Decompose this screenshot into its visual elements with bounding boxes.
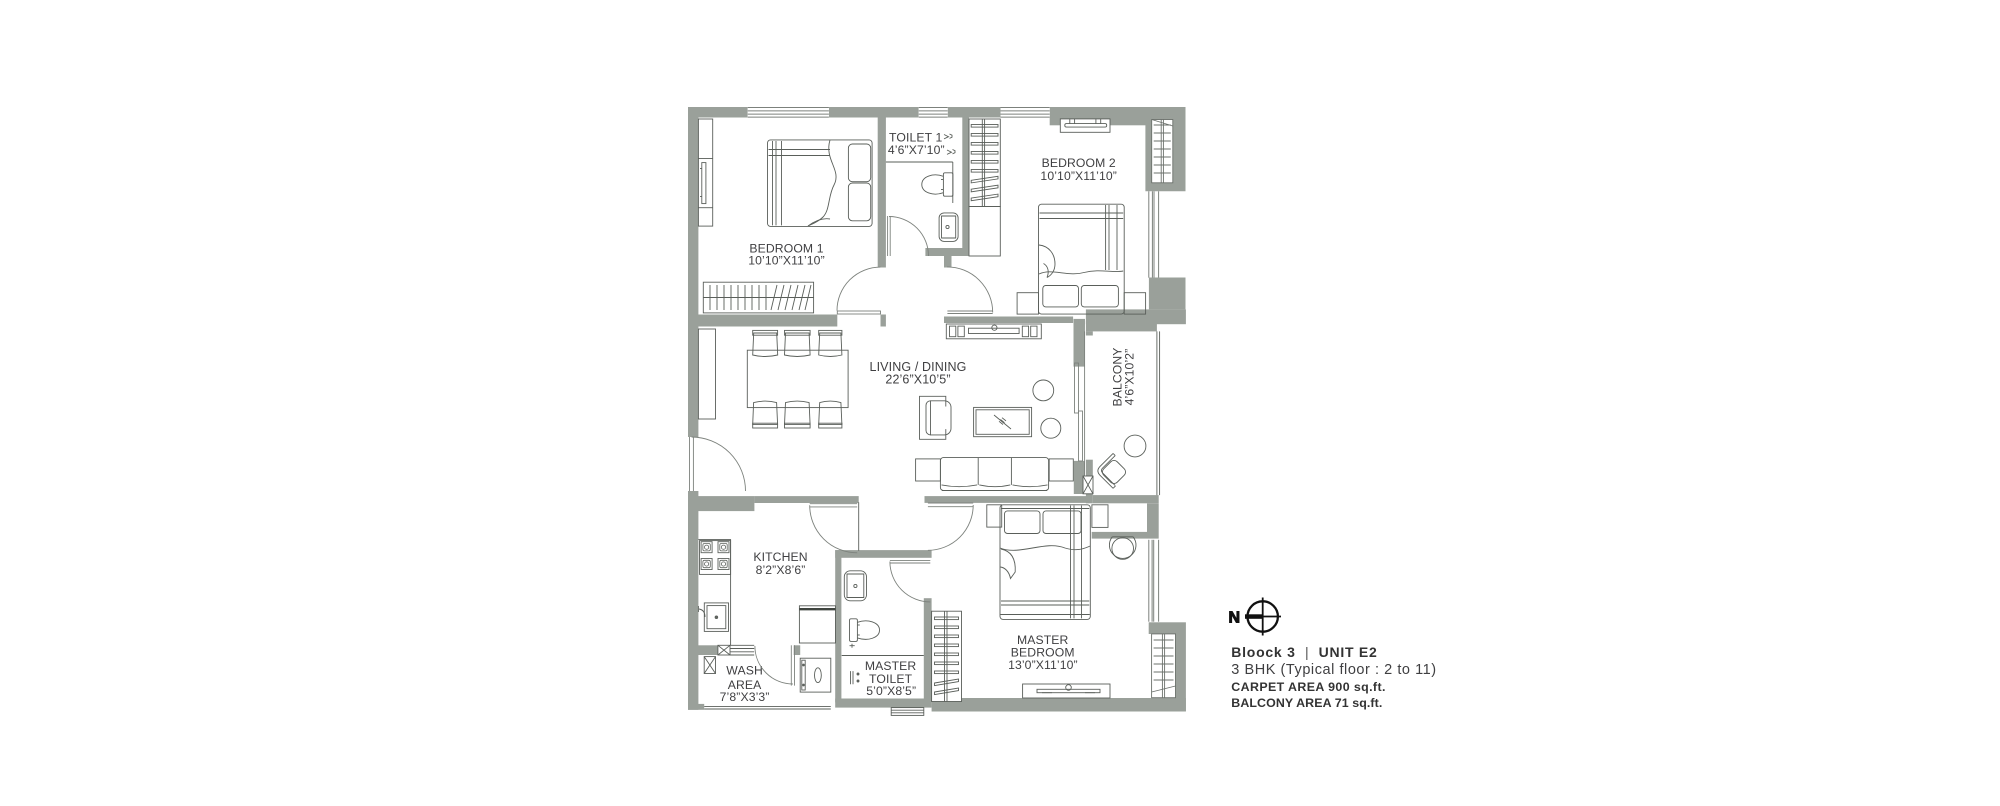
svg-text:KITCHEN: KITCHEN bbox=[753, 550, 807, 564]
svg-text:N: N bbox=[1229, 610, 1241, 627]
svg-text:MASTER: MASTER bbox=[865, 659, 917, 673]
svg-text:22’6”X10’5”: 22’6”X10’5” bbox=[885, 373, 950, 387]
svg-text:BALCONY AREA 71 sq.ft.: BALCONY AREA 71 sq.ft. bbox=[1231, 696, 1382, 710]
svg-text:7’8”X3’3”: 7’8”X3’3” bbox=[720, 690, 770, 704]
svg-text:10’10”X11’10”: 10’10”X11’10” bbox=[1040, 169, 1117, 183]
svg-text:WASH: WASH bbox=[726, 663, 763, 677]
svg-text:4’6”X10’2”: 4’6”X10’2” bbox=[1123, 349, 1137, 406]
svg-text:8’2”X8’6”: 8’2”X8’6” bbox=[756, 563, 806, 577]
svg-text:3 BHK (Typical floor : 2 to 11: 3 BHK (Typical floor : 2 to 11) bbox=[1231, 662, 1436, 678]
svg-text:5’0”X8’5”: 5’0”X8’5” bbox=[866, 684, 916, 698]
svg-text:CARPET AREA 900 sq.ft.: CARPET AREA 900 sq.ft. bbox=[1231, 680, 1386, 694]
svg-text:BEDROOM 2: BEDROOM 2 bbox=[1042, 156, 1116, 170]
svg-text:Bloock 3 | UNIT E2: Bloock 3 | UNIT E2 bbox=[1231, 644, 1377, 660]
svg-text:13’0”X11’10”: 13’0”X11’10” bbox=[1008, 658, 1078, 672]
svg-text:4’6”X7’10”: 4’6”X7’10” bbox=[888, 143, 945, 157]
svg-text:10’10”X11’10”: 10’10”X11’10” bbox=[748, 254, 825, 268]
